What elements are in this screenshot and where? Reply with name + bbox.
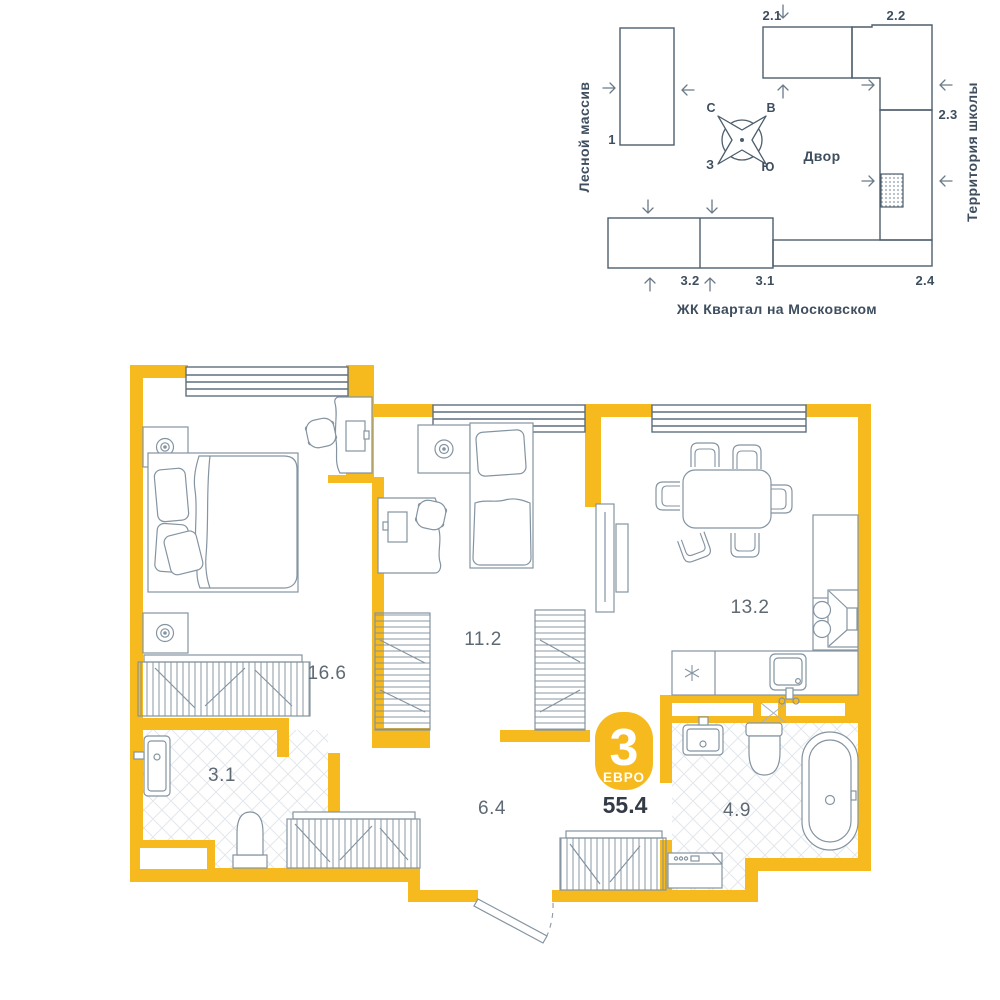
- site-building-3-1-label: 3.1: [756, 273, 775, 288]
- site-highlighted-unit: [881, 174, 903, 207]
- site-building-2-2-label: 2.2: [887, 8, 906, 23]
- courtyard-label: Двор: [803, 148, 840, 164]
- door-leaf: [474, 899, 547, 943]
- nightstand-lamp: [143, 613, 188, 653]
- site-building-2-4-label: 2.4: [916, 273, 935, 288]
- site-plan: [608, 25, 932, 268]
- arrow-up-icon: [705, 278, 715, 291]
- wardrobe: [535, 610, 585, 730]
- arrow-right-icon: [862, 176, 874, 186]
- room-area-bathroom: 3.1: [208, 765, 236, 786]
- office-chair: [304, 416, 338, 449]
- badge-type-label: ЕВРО: [603, 770, 645, 785]
- forest-area-label: Лесной массив: [576, 82, 592, 193]
- arrow-left-icon: [940, 176, 952, 186]
- windows: [186, 367, 806, 432]
- compass-south: Ю: [762, 160, 775, 174]
- arrow-down-icon: [707, 200, 717, 213]
- desk: [335, 397, 372, 473]
- site-building-2-1-label: 2.1: [763, 8, 782, 23]
- school-area-label: Территория школы: [964, 82, 980, 222]
- dining-chair: [656, 482, 680, 510]
- wardrobe: [375, 613, 430, 730]
- wall-niche: [140, 848, 207, 869]
- site-building-2-4: [773, 240, 932, 266]
- site-building-2-1: [763, 27, 852, 78]
- nightstand-lamp: [418, 425, 470, 473]
- site-building-3: [608, 218, 773, 268]
- furniture-kitchen: [656, 443, 858, 704]
- single-bed: [470, 423, 533, 568]
- site-building-1: [620, 28, 674, 145]
- entry-door: [474, 899, 553, 943]
- wardrobe: [287, 812, 420, 868]
- room-area-bedroom: 16.6: [308, 663, 347, 684]
- window-bedroom: [186, 367, 348, 396]
- arrow-left-icon: [682, 85, 694, 95]
- room-area-bedroom-2: 11.2: [464, 629, 502, 650]
- tv-console: [596, 504, 628, 612]
- wardrobe: [138, 655, 310, 716]
- complex-name-label: ЖК Квартал на Московском: [676, 301, 877, 317]
- arrow-left-icon: [940, 80, 952, 90]
- arrow-right-icon: [603, 83, 615, 93]
- site-building-1-label: 1: [608, 132, 616, 147]
- dining-chair: [731, 533, 759, 557]
- compass-east: В: [766, 101, 775, 115]
- arrow-right-icon: [862, 80, 874, 90]
- dining-chair: [691, 443, 719, 467]
- floorplan-canvas: С В З Ю 1 2.1 2.2 2.3 2.4 3.2 3.1 Двор Ж…: [0, 0, 1000, 1000]
- site-building-2-3-label: 2.3: [939, 107, 958, 122]
- site-building-3-2-label: 3.2: [681, 273, 700, 288]
- dining-chair: [678, 532, 713, 564]
- floorplan-page: С В З Ю 1 2.1 2.2 2.3 2.4 3.2 3.1 Двор Ж…: [0, 0, 1000, 1000]
- rooms-badge: 3 ЕВРО: [595, 712, 653, 790]
- window-kitchen: [652, 405, 806, 432]
- washing-machine: [668, 853, 722, 888]
- compass-icon: С В З Ю: [706, 101, 775, 174]
- room-area-kitchen: 13.2: [731, 597, 770, 618]
- bathtub: [802, 732, 858, 850]
- wardrobe: [560, 831, 666, 890]
- dining-chair: [733, 445, 761, 469]
- double-bed: [148, 453, 298, 592]
- room-area-bathroom-2: 4.9: [723, 800, 751, 821]
- dining-table: [683, 470, 771, 528]
- arrow-up-icon: [778, 85, 788, 98]
- site-building-2-2: [852, 25, 932, 110]
- arrow-up-icon: [645, 278, 655, 291]
- toilet: [746, 723, 782, 775]
- site-entrance-arrows: [603, 5, 952, 291]
- compass-west: З: [706, 158, 714, 172]
- compass-north: С: [706, 101, 715, 115]
- room-area-hallway: 6.4: [478, 798, 506, 819]
- door-swing-arc: [545, 903, 553, 940]
- badge-room-count: 3: [610, 719, 639, 777]
- arrow-down-icon: [643, 200, 653, 213]
- total-area-label: 55.4: [603, 792, 648, 818]
